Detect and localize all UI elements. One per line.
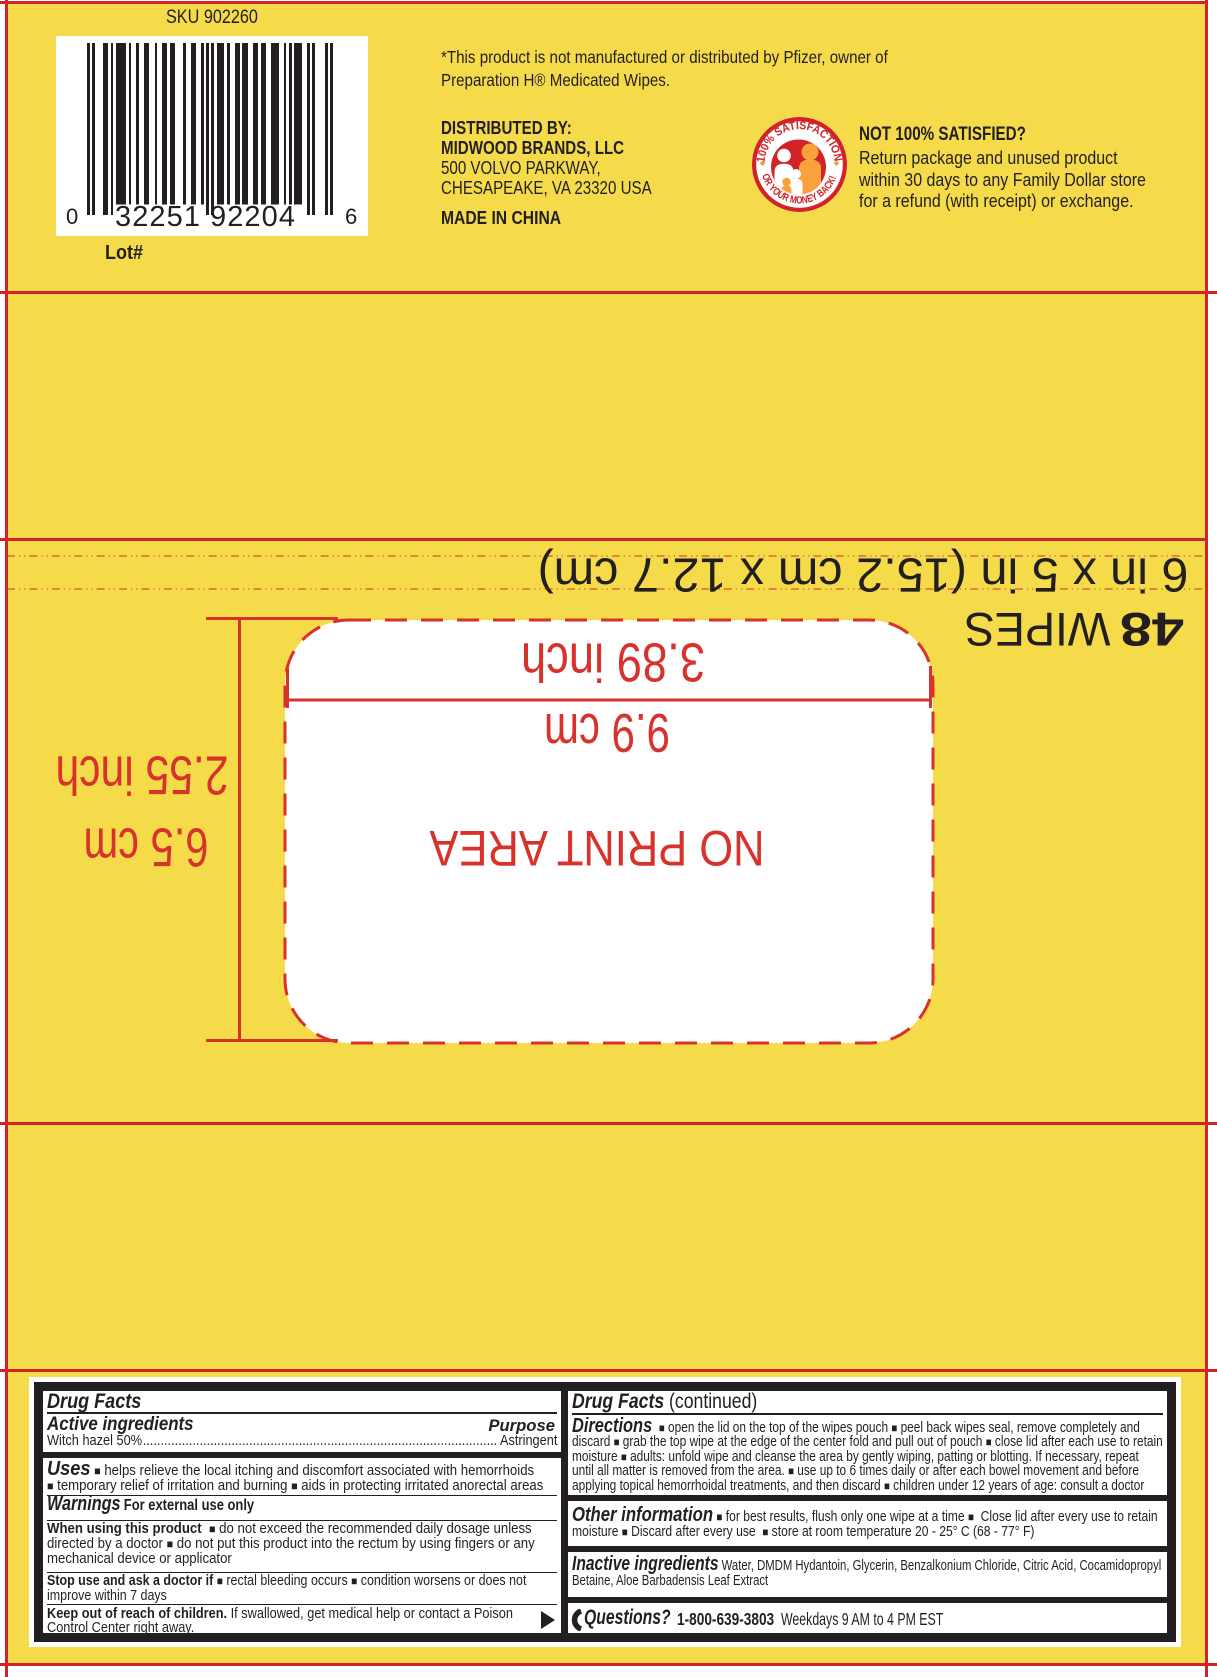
svg-text:48: 48 [1120, 603, 1184, 656]
svg-text:6.5 cm: 6.5 cm [84, 817, 209, 879]
svg-text:2.55 inch: 2.55 inch [56, 745, 229, 807]
svg-text:6 in x 5 in (15.2 cm x 12.7 cm: 6 in x 5 in (15.2 cm x 12.7 cm) [538, 548, 1189, 601]
svg-text:32251: 32251 [115, 201, 200, 233]
svg-text:9.9 cm: 9.9 cm [544, 702, 670, 764]
svg-text:0: 0 [66, 204, 78, 229]
svg-text:92204: 92204 [210, 201, 295, 233]
svg-text:6: 6 [345, 204, 357, 229]
svg-text:WIPES: WIPES [965, 603, 1111, 656]
svg-text:NO PRINT AREA: NO PRINT AREA [429, 820, 765, 876]
svg-text:3.89 inch: 3.89 inch [521, 632, 705, 694]
